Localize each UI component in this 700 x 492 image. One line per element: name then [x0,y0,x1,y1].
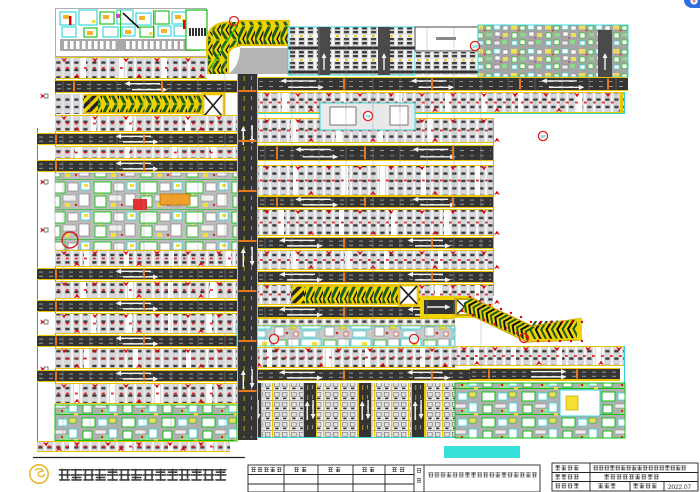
svg-text:5#: 5# [540,134,546,140]
svg-text:7#: 7# [365,114,371,120]
svg-text:2022.07: 2022.07 [668,484,692,491]
svg-text:2#: 2# [472,44,478,50]
